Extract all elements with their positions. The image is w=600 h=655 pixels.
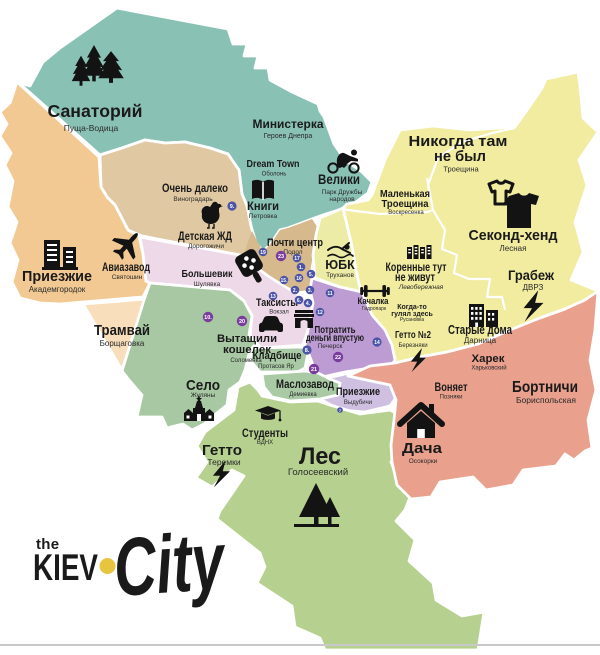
svg-text:22: 22 xyxy=(335,355,341,361)
svg-text:16: 16 xyxy=(296,276,302,282)
svg-text:Петровка: Петровка xyxy=(249,213,278,220)
svg-text:6.: 6. xyxy=(297,298,302,304)
svg-text:10.: 10. xyxy=(204,315,212,321)
svg-text:Кладбище: Кладбище xyxy=(253,350,302,362)
svg-text:5.: 5. xyxy=(309,272,314,278)
svg-text:23: 23 xyxy=(278,254,284,260)
svg-text:Дорогожичи: Дорогожичи xyxy=(188,243,224,250)
svg-text:народов: народов xyxy=(329,196,355,203)
svg-text:не живут: не живут xyxy=(395,270,435,284)
svg-text:Дарница: Дарница xyxy=(464,336,497,345)
svg-text:20: 20 xyxy=(239,319,245,325)
svg-text:17: 17 xyxy=(294,256,300,262)
svg-text:Гетто №2: Гетто №2 xyxy=(395,330,431,341)
svg-text:Очень далеко: Очень далеко xyxy=(162,181,228,195)
svg-text:Никогда там: Никогда там xyxy=(409,134,508,150)
svg-text:Качалка: Качалка xyxy=(358,296,390,306)
svg-text:8.: 8. xyxy=(305,348,310,354)
svg-text:Шулявка: Шулявка xyxy=(194,281,221,288)
svg-text:Министерка: Министерка xyxy=(253,117,324,131)
svg-text:Воняет: Воняет xyxy=(435,382,468,394)
svg-text:Оболонь: Оболонь xyxy=(262,172,287,178)
svg-text:1.: 1. xyxy=(299,265,304,271)
svg-text:Авиазавод: Авиазавод xyxy=(102,262,151,274)
svg-text:Троещина: Троещина xyxy=(443,165,479,174)
svg-text:City: City xyxy=(111,515,230,614)
svg-text:Демиевка: Демиевка xyxy=(289,392,317,398)
svg-text:Воскресенка: Воскресенка xyxy=(388,210,424,216)
svg-text:Героев Днепра: Героев Днепра xyxy=(264,133,313,140)
svg-text:Таксисты: Таксисты xyxy=(256,297,298,309)
svg-text:Протасов Яр: Протасов Яр xyxy=(258,364,294,370)
svg-text:3.: 3. xyxy=(308,288,313,294)
svg-text:Позняки: Позняки xyxy=(440,395,463,401)
svg-text:Дача: Дача xyxy=(402,441,443,457)
svg-text:14: 14 xyxy=(374,340,380,346)
svg-text:4.: 4. xyxy=(306,301,311,307)
svg-text:Лес: Лес xyxy=(299,443,341,470)
svg-text:Академгородок: Академгородок xyxy=(29,285,86,294)
svg-text:Харьковский: Харьковский xyxy=(471,365,506,372)
svg-text:Виноградарь: Виноградарь xyxy=(173,196,213,203)
svg-text:Детская ЖД: Детская ЖД xyxy=(178,231,232,243)
svg-text:Троещина: Троещина xyxy=(382,198,429,210)
svg-text:Грабеж: Грабеж xyxy=(508,267,555,283)
svg-text:Печерск: Печерск xyxy=(318,343,343,350)
svg-text:Книги: Книги xyxy=(247,199,279,213)
svg-text:Святошин: Святошин xyxy=(112,274,143,281)
svg-text:Голосеевский: Голосеевский xyxy=(288,467,348,478)
svg-text:Почти центр: Почти центр xyxy=(267,237,323,249)
svg-text:Харек: Харек xyxy=(472,353,506,365)
svg-text:Бортничи: Бортничи xyxy=(512,379,578,396)
svg-text:Гидропарк: Гидропарк xyxy=(362,306,387,312)
svg-text:9.: 9. xyxy=(230,204,235,210)
svg-text:ВДНХ: ВДНХ xyxy=(257,440,273,446)
svg-text:2.: 2. xyxy=(293,288,298,294)
svg-text:Труханов: Труханов xyxy=(326,272,354,279)
svg-text:Большевик: Большевик xyxy=(182,268,234,280)
svg-text:Бориспольская: Бориспольская xyxy=(516,395,576,405)
svg-text:Приезжие: Приезжие xyxy=(22,269,92,285)
svg-text:Выдубичи: Выдубичи xyxy=(344,400,372,406)
svg-text:11: 11 xyxy=(327,291,333,297)
svg-text:ДВРЗ: ДВРЗ xyxy=(523,283,544,292)
svg-text:Санаторий: Санаторий xyxy=(48,101,143,121)
svg-text:KIEV: KIEV xyxy=(33,547,98,588)
svg-text:Березняки: Березняки xyxy=(398,343,427,349)
svg-text:19: 19 xyxy=(260,250,266,256)
svg-text:Жуляны: Жуляны xyxy=(191,392,216,399)
svg-text:Русановка: Русановка xyxy=(400,317,425,323)
svg-text:Велики: Велики xyxy=(318,172,360,187)
svg-text:Трамвай: Трамвай xyxy=(94,323,150,339)
svg-text:Осокорки: Осокорки xyxy=(409,458,438,465)
svg-text:21: 21 xyxy=(311,367,317,373)
svg-text:не был: не был xyxy=(434,149,486,165)
svg-text:Студенты: Студенты xyxy=(242,426,288,440)
svg-text:13: 13 xyxy=(270,294,276,300)
svg-text:Левобережная: Левобережная xyxy=(398,283,444,291)
svg-text:Пуща-Водица: Пуща-Водица xyxy=(64,123,119,133)
svg-text:Лесная: Лесная xyxy=(500,244,527,253)
svg-text:Борщаговка: Борщаговка xyxy=(100,339,145,348)
svg-text:Когда-то: Когда-то xyxy=(397,304,426,311)
svg-text:Секонд-хенд: Секонд-хенд xyxy=(469,227,558,244)
svg-text:ЮБК: ЮБК xyxy=(325,258,355,272)
svg-text:12: 12 xyxy=(317,310,323,316)
svg-text:15.: 15. xyxy=(281,278,289,284)
svg-text:Приезжие: Приезжие xyxy=(336,386,380,398)
svg-text:Парк Дружбы: Парк Дружбы xyxy=(322,188,363,196)
svg-text:Вокзал: Вокзал xyxy=(269,310,289,316)
svg-text:Dream Town: Dream Town xyxy=(247,158,300,170)
svg-text:Маслозавод: Маслозавод xyxy=(276,377,334,391)
